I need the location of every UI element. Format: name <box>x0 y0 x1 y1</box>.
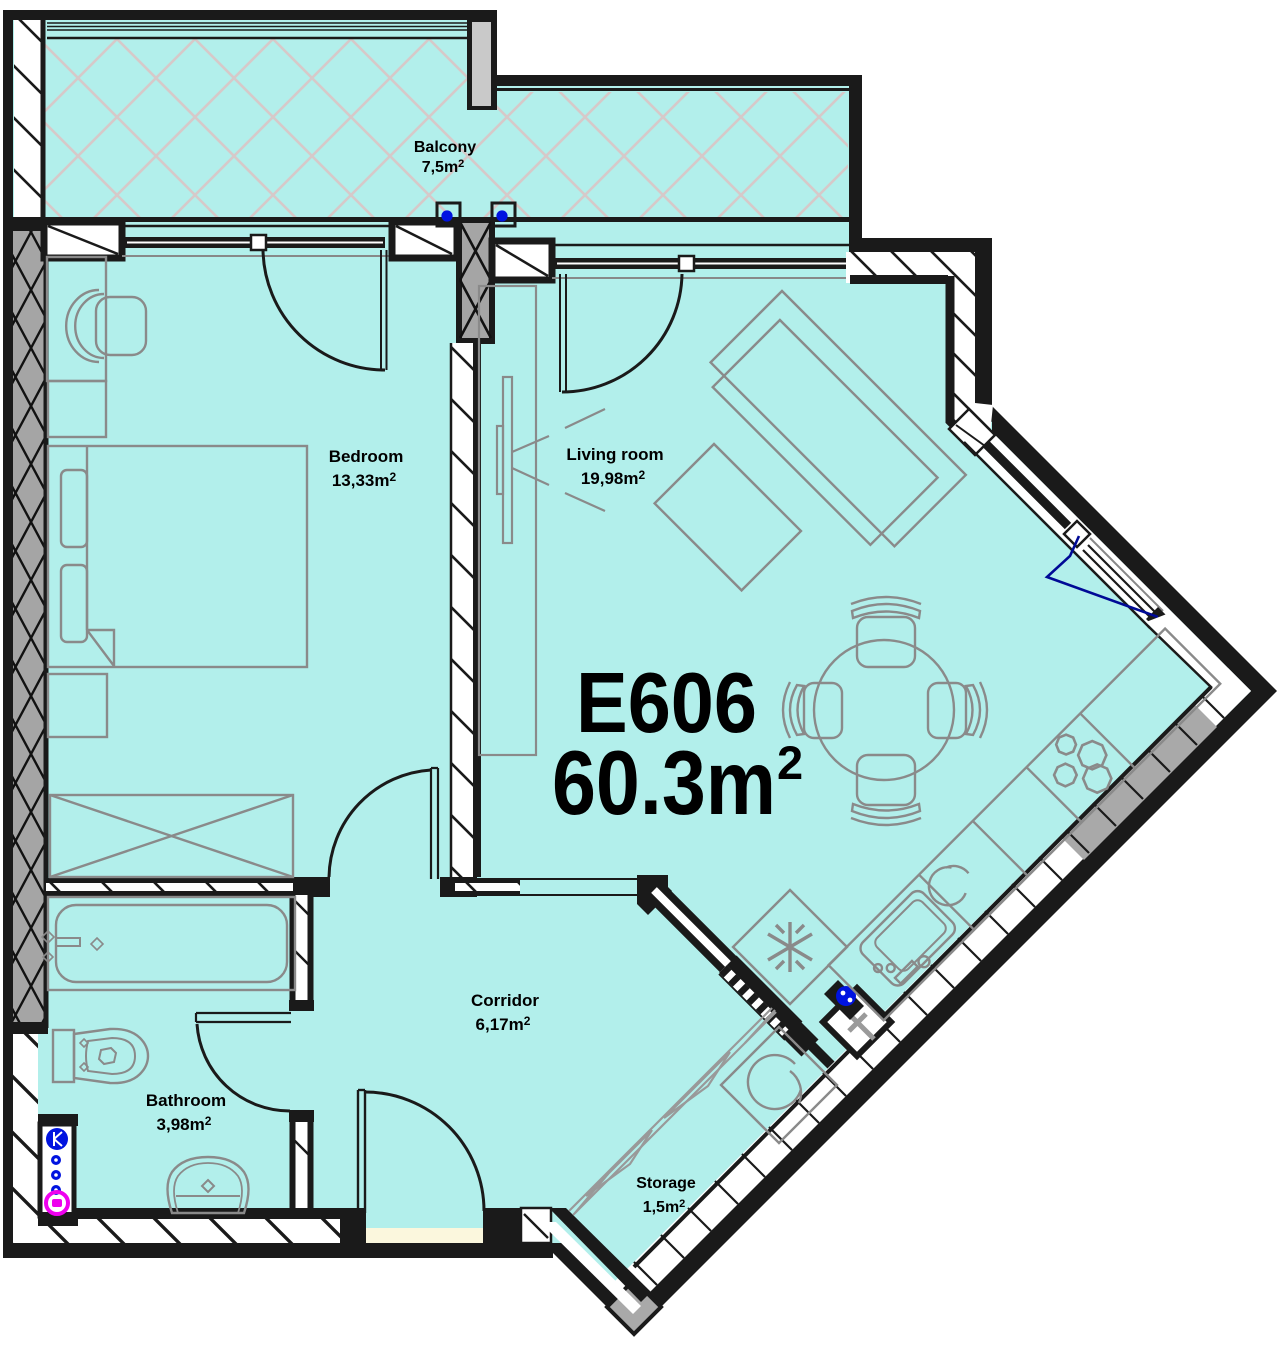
svg-text:Storage: Storage <box>636 1175 696 1192</box>
svg-text:2: 2 <box>777 736 803 789</box>
svg-text:6,17m2: 6,17m2 <box>476 1014 531 1034</box>
svg-text:60.3m: 60.3m <box>552 733 776 834</box>
svg-text:7,5m2: 7,5m2 <box>422 158 465 176</box>
svg-text:13,33m2: 13,33m2 <box>332 470 397 490</box>
svg-text:Bathroom: Bathroom <box>146 1091 226 1110</box>
svg-text:1,5m2: 1,5m2 <box>643 1198 686 1216</box>
svg-text:Living room: Living room <box>566 445 663 464</box>
svg-text:19,98m2: 19,98m2 <box>581 468 646 488</box>
svg-text:Bedroom: Bedroom <box>329 447 404 466</box>
svg-text:Balcony: Balcony <box>414 139 476 156</box>
svg-text:Corridor: Corridor <box>471 991 539 1010</box>
svg-text:3,98m2: 3,98m2 <box>157 1114 212 1134</box>
